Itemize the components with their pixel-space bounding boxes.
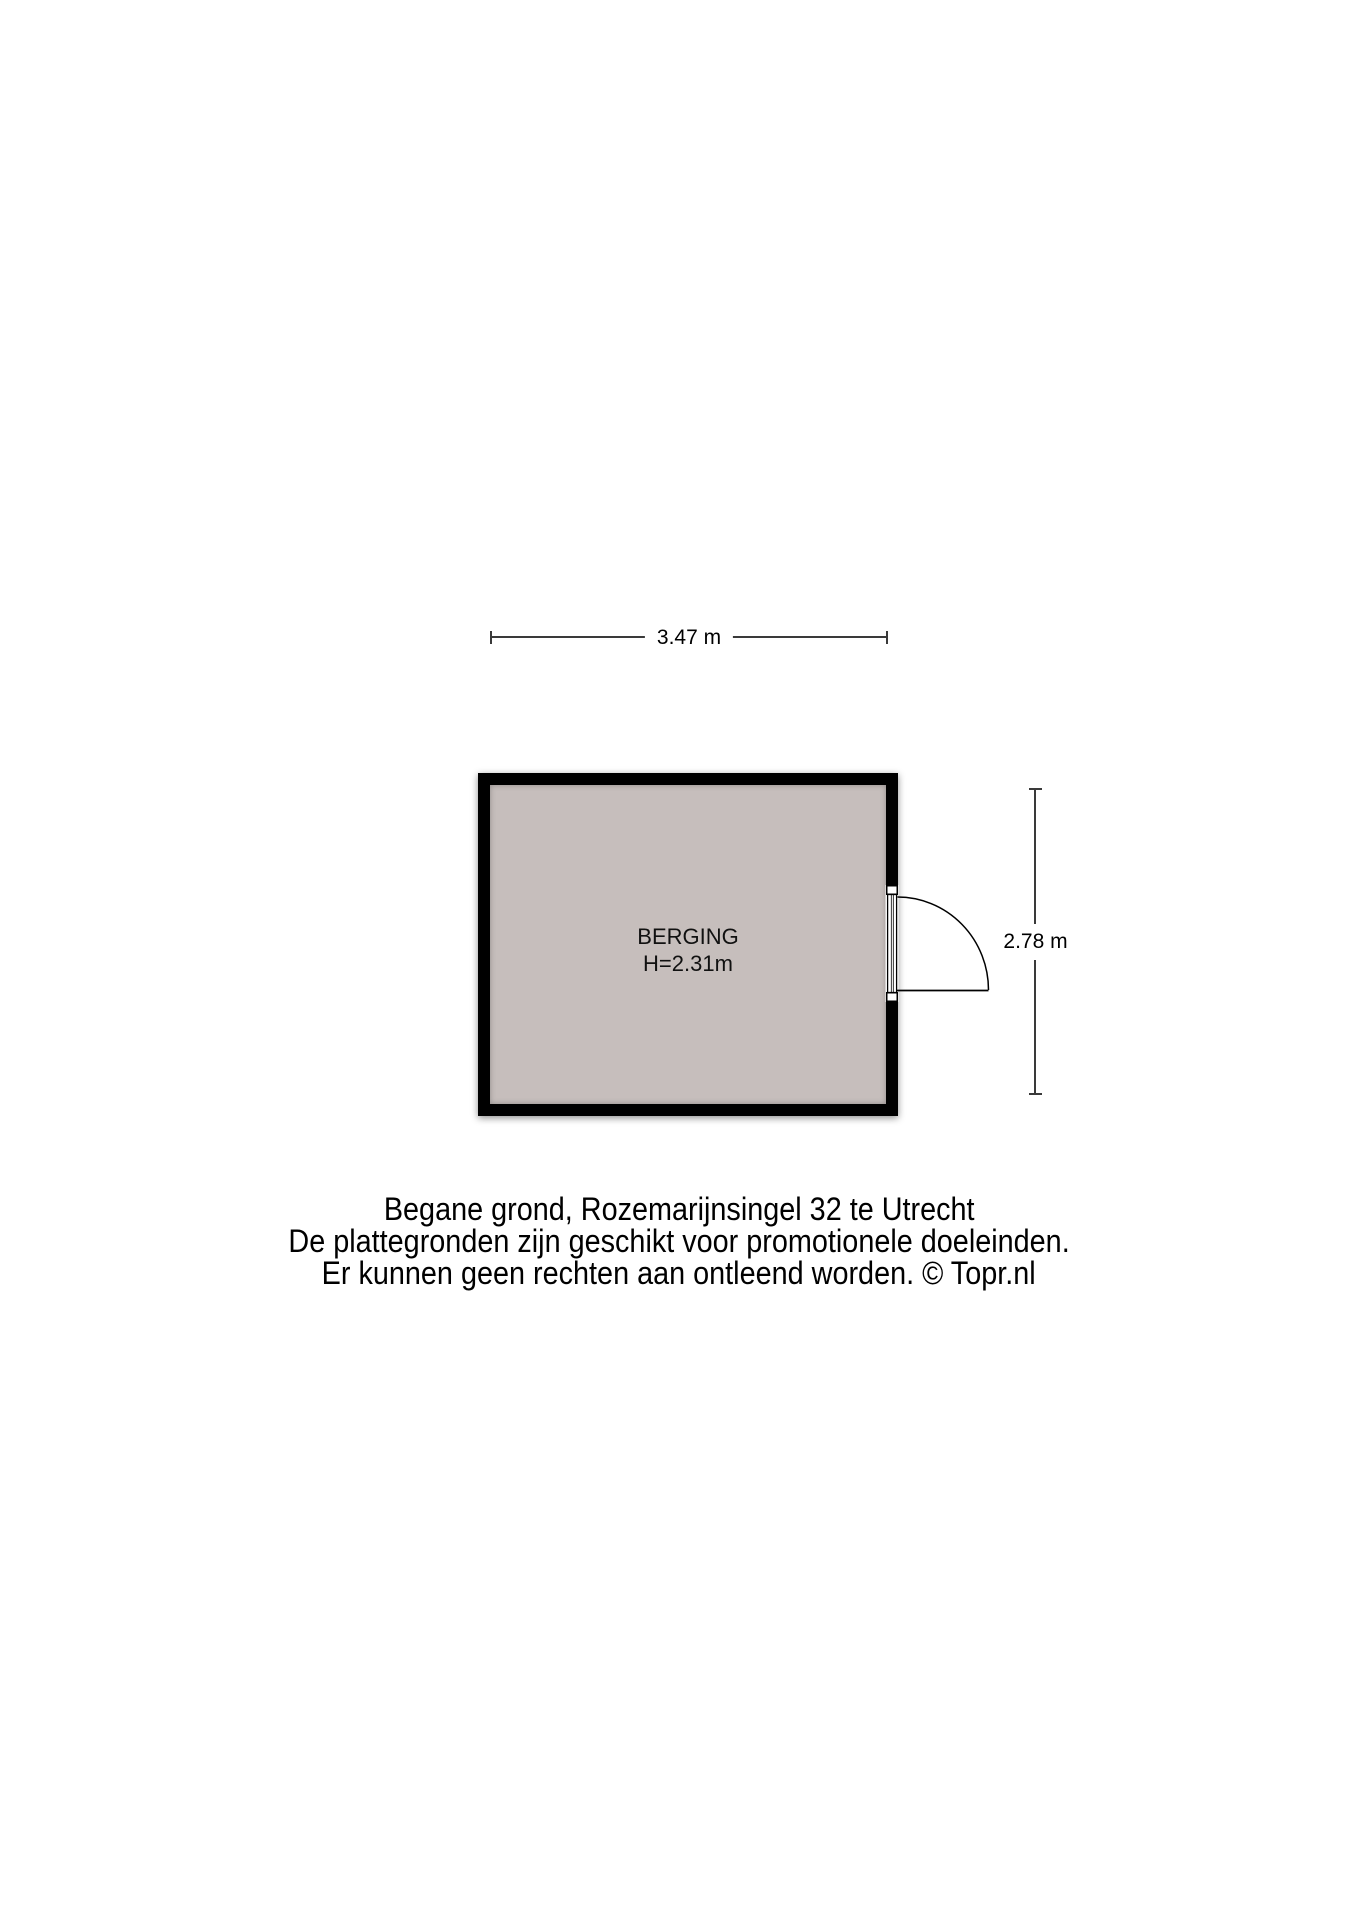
caption: Begane grond, Rozemarijnsingel 32 te Utr… (0, 1193, 1358, 1289)
room-interior: BERGING H=2.31m (490, 785, 886, 1104)
width-dimension-tick-right (886, 631, 888, 644)
height-dimension-label: 2.78 m (999, 924, 1071, 960)
caption-line-3: Er kunnen geen rechten aan ontleend word… (0, 1257, 1358, 1289)
width-dimension: 3.47 m (490, 631, 888, 644)
door-swing-icon (880, 880, 995, 1005)
width-dimension-tick-left (490, 631, 492, 644)
room-ceiling-height: H=2.31m (637, 950, 738, 977)
width-dimension-label: 3.47 m (645, 624, 733, 652)
caption-line-1: Begane grond, Rozemarijnsingel 32 te Utr… (0, 1193, 1358, 1225)
caption-line-2: De plattegronden zijn geschikt voor prom… (0, 1225, 1358, 1257)
room-label: BERGING H=2.31m (637, 923, 738, 977)
floorplan-page: 3.47 m BERGING H=2.31m 2.78 m (0, 0, 1358, 1920)
height-dimension-tick-bottom (1029, 1093, 1042, 1095)
height-dimension: 2.78 m (1029, 788, 1042, 1095)
room-walls: BERGING H=2.31m (478, 773, 898, 1116)
room-name: BERGING (637, 923, 738, 950)
height-dimension-tick-top (1029, 788, 1042, 790)
